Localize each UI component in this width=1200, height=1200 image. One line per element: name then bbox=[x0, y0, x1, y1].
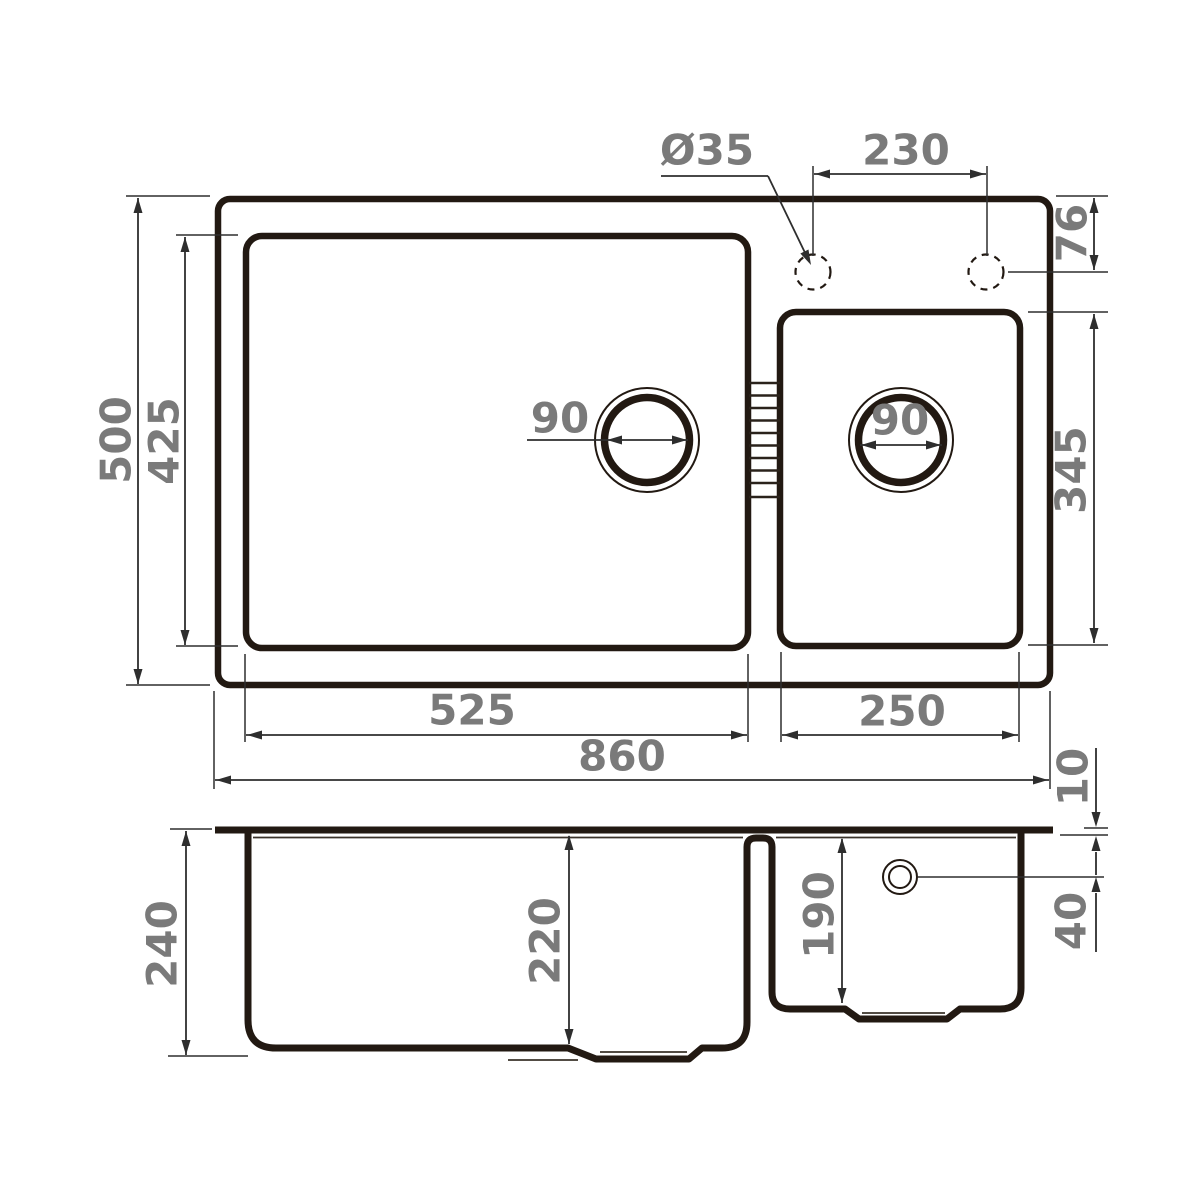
dim-small-bowl-length: 345 bbox=[1028, 312, 1108, 645]
dim-label-main-bowl-depth: 220 bbox=[521, 897, 570, 985]
arrowhead bbox=[134, 669, 143, 684]
dim-label-faucet-hole-spacing: 230 bbox=[862, 126, 950, 175]
dim-rim-thickness: 10 bbox=[1049, 748, 1109, 851]
dim-label-rim-thickness: 10 bbox=[1049, 748, 1098, 806]
dim-label-faucet-hole-diameter: Ø35 bbox=[660, 126, 754, 175]
arrowhead bbox=[607, 436, 622, 445]
faucet-hole-left bbox=[796, 255, 831, 290]
dim-small-drain-diameter: 90 bbox=[860, 396, 942, 450]
arrowhead bbox=[1092, 836, 1101, 851]
dim-label-overall-width: 860 bbox=[578, 732, 666, 781]
sink-technical-drawing: Ø35 230 76 500 bbox=[0, 0, 1200, 1200]
arrowhead bbox=[134, 198, 143, 213]
divider-grooves bbox=[749, 383, 780, 497]
dim-label-small-drain-diameter: 90 bbox=[871, 396, 929, 445]
plan-view: Ø35 230 76 500 bbox=[92, 126, 1109, 790]
dim-small-bowl-width: 250 bbox=[781, 652, 1019, 742]
arrowhead bbox=[216, 776, 231, 785]
dim-bowls-depth-plan: 425 bbox=[140, 235, 239, 646]
section-view: 240 220 190 10 bbox=[138, 748, 1109, 1060]
arrowhead bbox=[731, 731, 746, 740]
arrowhead bbox=[565, 1029, 574, 1044]
dim-label-faucet-hole-offset: 76 bbox=[1048, 204, 1097, 262]
arrowhead bbox=[181, 237, 190, 252]
dim-label-main-bowl-width: 525 bbox=[428, 686, 516, 735]
dim-label-overflow-offset: 40 bbox=[1047, 892, 1096, 950]
dim-main-bowl-depth: 220 bbox=[521, 835, 574, 1044]
arrowhead bbox=[838, 988, 847, 1003]
bowls-section-profile bbox=[248, 830, 1021, 1059]
dim-total-height: 240 bbox=[138, 829, 249, 1056]
dim-small-bowl-depth: 190 bbox=[795, 838, 847, 1003]
dim-label-total-height: 240 bbox=[138, 900, 187, 988]
arrowhead bbox=[1033, 776, 1048, 785]
arrowhead bbox=[247, 731, 262, 740]
dim-label-main-drain-diameter: 90 bbox=[531, 394, 589, 443]
arrowhead bbox=[181, 630, 190, 645]
dim-faucet-hole-offset: 76 bbox=[1008, 196, 1108, 272]
dim-label-overall-depth: 500 bbox=[92, 396, 141, 484]
arrowhead bbox=[182, 831, 191, 846]
dim-main-bowl-width: 525 bbox=[245, 654, 748, 742]
arrowhead bbox=[1090, 314, 1099, 329]
arrowhead bbox=[1002, 731, 1017, 740]
arrowhead bbox=[838, 838, 847, 853]
dim-overflow-offset: 40 bbox=[918, 852, 1104, 952]
arrowhead bbox=[1092, 812, 1101, 827]
arrowhead bbox=[815, 170, 830, 179]
arrowhead bbox=[182, 1040, 191, 1055]
dim-faucet-hole-spacing: 230 bbox=[813, 126, 987, 257]
arrowhead bbox=[970, 170, 985, 179]
drawing-canvas: Ø35 230 76 500 bbox=[0, 0, 1200, 1200]
dim-label-small-bowl-length: 345 bbox=[1047, 426, 1096, 514]
dim-label-bowls-depth-plan: 425 bbox=[140, 397, 189, 485]
arrowhead bbox=[1090, 628, 1099, 643]
faucet-hole-right bbox=[969, 255, 1004, 290]
dim-label-small-bowl-width: 250 bbox=[858, 687, 946, 736]
overflow-inner-circle bbox=[889, 866, 911, 888]
arrowhead bbox=[672, 436, 687, 445]
arrowhead bbox=[1092, 877, 1101, 892]
leader-line bbox=[768, 176, 809, 261]
arrowhead bbox=[783, 731, 798, 740]
dim-label-small-bowl-depth: 190 bbox=[795, 871, 844, 959]
